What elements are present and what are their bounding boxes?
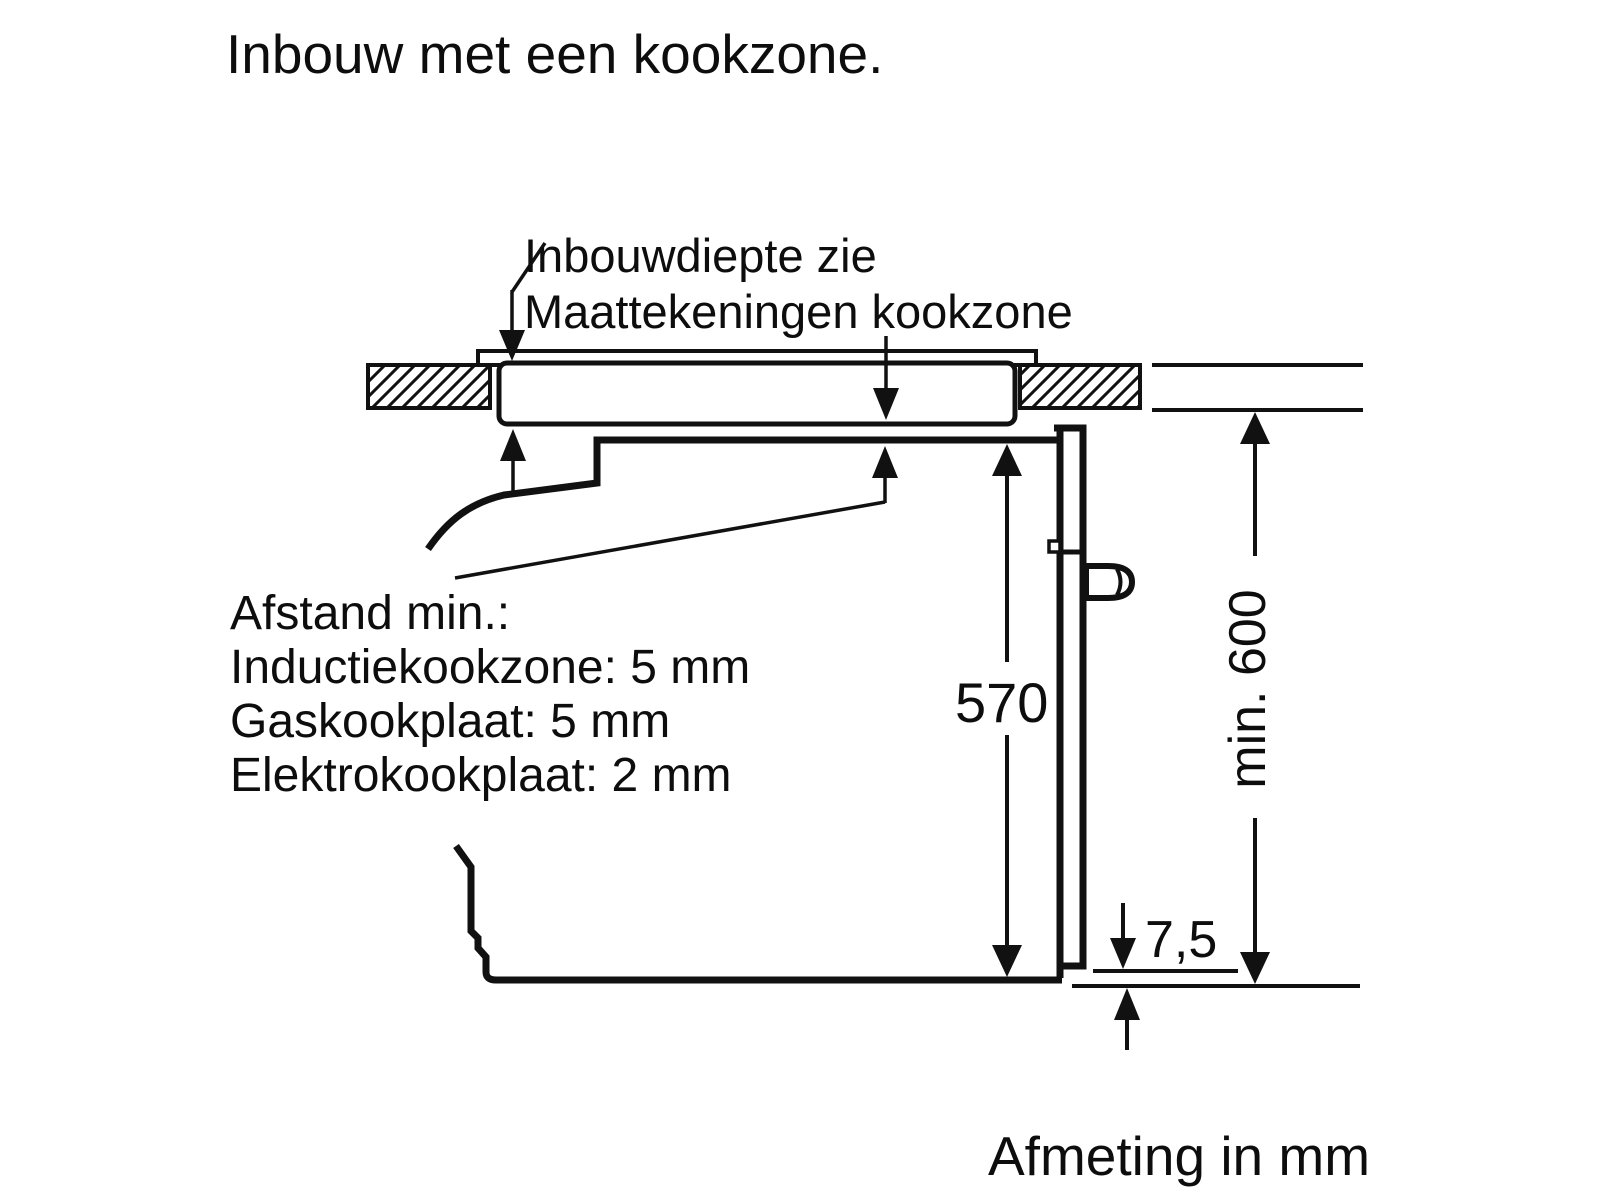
dim-600-down-arrowhead (1240, 952, 1270, 984)
clearance-callout-electric: Elektrokookplaat: 2 mm (230, 748, 732, 803)
installation-drawing-page: Inbouw met een kookzone. Inbouwdiepte zi… (0, 0, 1600, 1200)
worktop-left-hatch-block (368, 365, 490, 408)
hob-underside-arrowhead (500, 429, 526, 461)
dim-75-down-arrowhead (1110, 938, 1136, 969)
drawing-title: Inbouw met een kookzone. (226, 22, 883, 86)
hob-body (499, 363, 1015, 424)
dimension-label-7-5: 7,5 (1145, 910, 1217, 970)
dimension-label-570: 570 (955, 670, 1048, 735)
hob-depth-callout-line2: Maattekeningen kookzone (524, 284, 1073, 339)
oven-bottom-and-left-outline (456, 846, 1062, 980)
hob-depth-callout-line1: Inbouwdiepte zie (524, 228, 877, 283)
dim-570-up-arrowhead (992, 444, 1022, 476)
clearance-callout-induction: Inductiekookzone: 5 mm (230, 640, 750, 695)
dimension-label-min-600: min. 600 (1219, 539, 1277, 839)
clearance-callout-gas: Gaskookplaat: 5 mm (230, 694, 670, 749)
oven-knob (1086, 566, 1132, 598)
units-note: Afmeting in mm (988, 1124, 1370, 1188)
hob (478, 351, 1036, 424)
clearance-callout-heading: Afstand min.: (230, 586, 510, 641)
clearance-arrowhead (872, 446, 898, 478)
dim-600-up-arrowhead (1240, 412, 1270, 444)
worktop-right-hatch-block (1020, 365, 1140, 408)
dim-75-up-arrowhead (1114, 988, 1140, 1020)
dim-570-down-arrowhead (992, 945, 1022, 977)
oven-front-notch (1049, 541, 1060, 552)
